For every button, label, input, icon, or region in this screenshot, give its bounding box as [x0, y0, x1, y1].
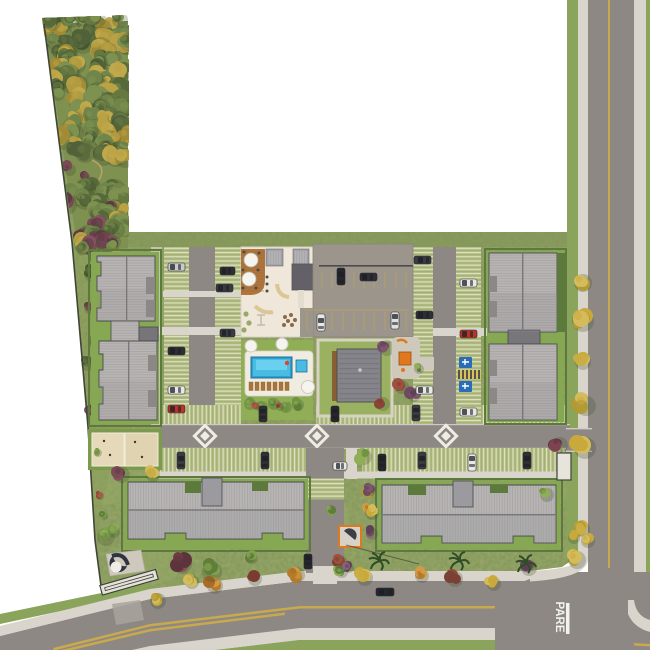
svg-text:PARE: PARE — [553, 601, 565, 632]
